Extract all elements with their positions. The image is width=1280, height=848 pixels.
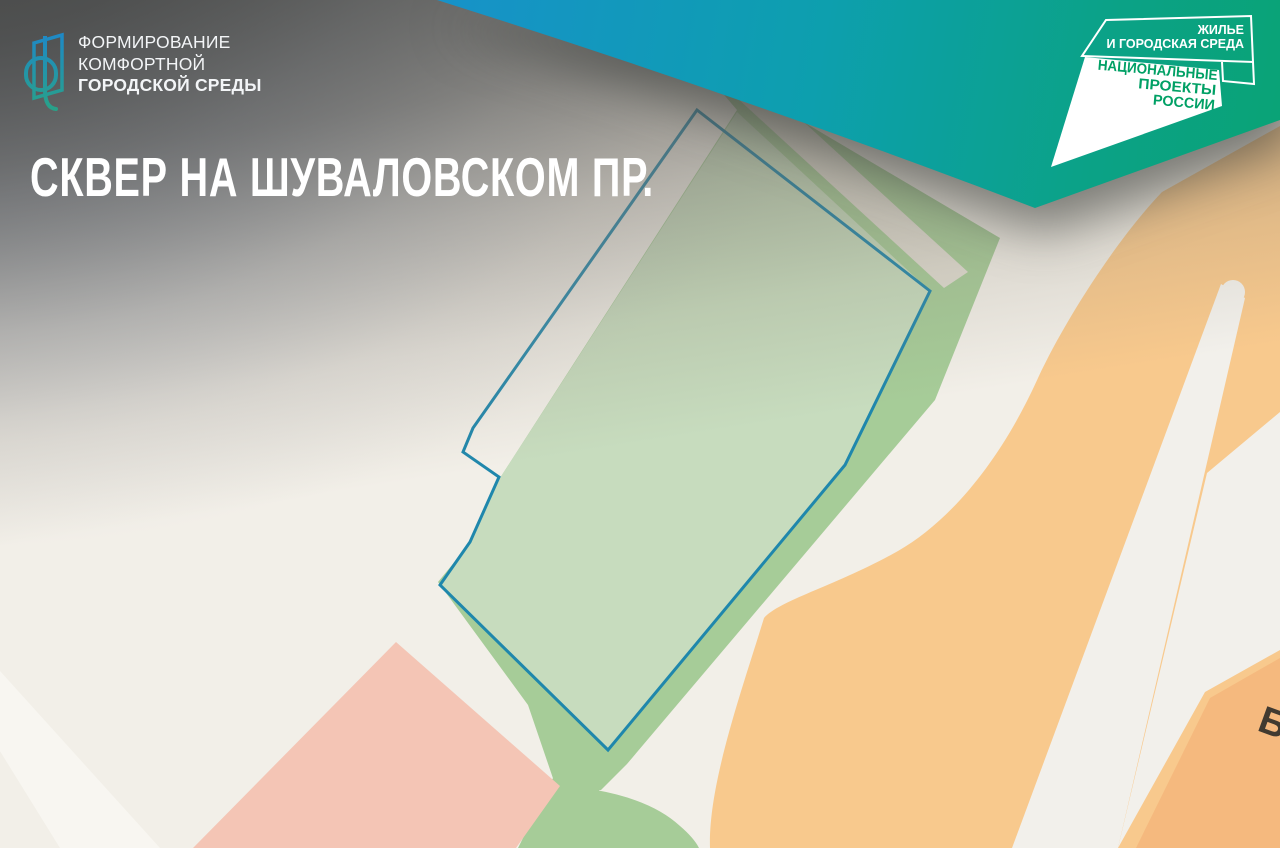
fkgs-logo-icon	[20, 32, 66, 114]
np-outline-tab	[1222, 62, 1254, 84]
fkgs-line-3: ГОРОДСКОЙ СРЕДЫ	[78, 75, 262, 97]
fkgs-logo: ФОРМИРОВАНИЕ КОМФОРТНОЙ ГОРОДСКОЙ СРЕДЫ	[20, 28, 262, 114]
fkgs-icon-loop	[26, 58, 56, 90]
poster-slide: Б СКВЕР НА ШУВАЛОВСКОМ ПР.	[0, 0, 1280, 848]
page-title: СКВЕР НА ШУВАЛОВСКОМ ПР.	[30, 150, 654, 205]
np-sector-line-1: ЖИЛЬЕ	[1197, 23, 1244, 37]
fkgs-line-1: ФОРМИРОВАНИЕ	[78, 32, 262, 54]
np-sector-line-2: И ГОРОДСКАЯ СРЕДА	[1106, 37, 1244, 51]
fkgs-line-2: КОМФОРТНОЙ	[78, 54, 262, 76]
fkgs-logo-text: ФОРМИРОВАНИЕ КОМФОРТНОЙ ГОРОДСКОЙ СРЕДЫ	[78, 32, 262, 114]
national-projects-logo: ЖИЛЬЕ И ГОРОДСКАЯ СРЕДА НАЦИОНАЛЬНЫЕ ПРО…	[1030, 0, 1280, 210]
